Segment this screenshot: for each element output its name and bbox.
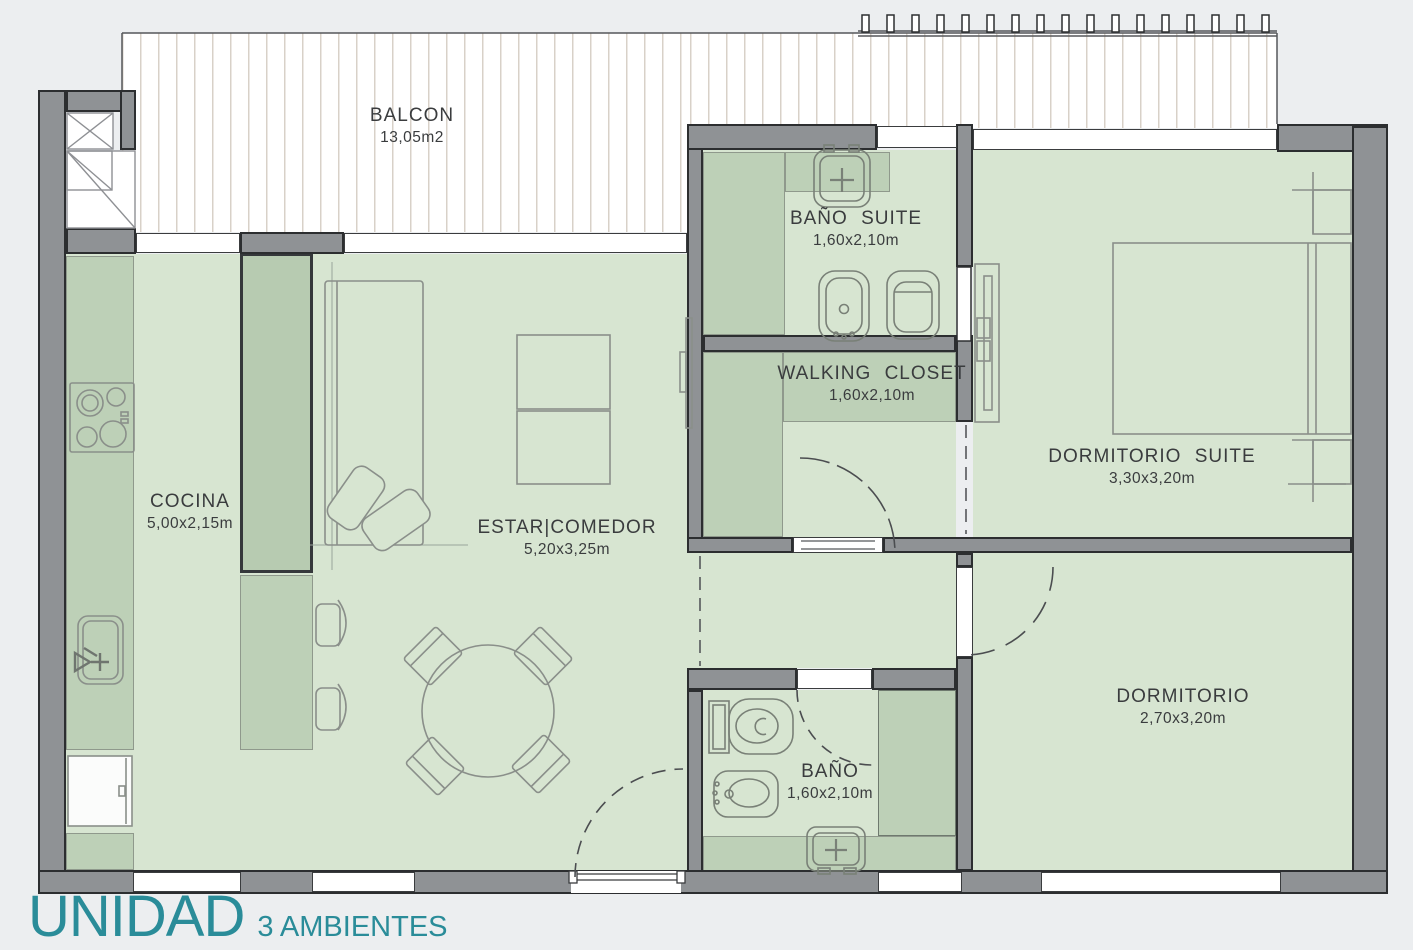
- bath-sink-icon: [807, 827, 865, 874]
- label-bano-suite: BAÑO SUITE 1,60x2,10m: [790, 208, 922, 250]
- floor-plan: BALCON 13,05m2 COCINA 5,00x2,15m ESTAR|C…: [0, 0, 1413, 950]
- room-dims: 13,05m2: [370, 129, 454, 147]
- room-dims: 1,60x2,10m: [790, 232, 922, 250]
- suite-bath-door-leaf: [957, 267, 971, 341]
- room-name: DORMITORIO SUITE: [1048, 446, 1255, 468]
- shaft: [67, 113, 135, 228]
- room-dims: 5,20x3,25m: [477, 541, 656, 559]
- wardrobe-icon: [975, 264, 999, 422]
- bath-door-arc: [797, 690, 872, 765]
- railing-posts: [862, 15, 1269, 32]
- suite-bidet-icon: [819, 271, 869, 341]
- room-name: WALKING CLOSET: [777, 363, 966, 385]
- tv-unit-icon: [517, 318, 692, 484]
- room-dims: 3,30x3,20m: [1048, 470, 1255, 488]
- room-name: ESTAR|COMEDOR: [477, 517, 656, 539]
- closet-door-threshold: [801, 541, 875, 549]
- unit-title: UNIDAD 3 AMBIENTES: [28, 888, 448, 946]
- label-walking-closet: WALKING CLOSET 1,60x2,10m: [777, 363, 966, 405]
- label-estar-comedor: ESTAR|COMEDOR 5,20x3,25m: [477, 517, 656, 559]
- room-dims: 2,70x3,20m: [1116, 710, 1249, 728]
- label-bano: BAÑO 1,60x2,10m: [787, 761, 873, 803]
- room-name: COCINA: [147, 491, 233, 513]
- bed-icon: [1113, 243, 1351, 434]
- sofa-icon: [310, 262, 468, 570]
- room-dims: 5,00x2,15m: [147, 515, 233, 533]
- room-name: BAÑO SUITE: [790, 208, 922, 230]
- suite-sink-icon: [814, 145, 870, 207]
- room-name: DORMITORIO: [1116, 686, 1249, 708]
- label-dormitorio-suite: DORMITORIO SUITE 3,30x3,20m: [1048, 446, 1255, 488]
- unit-title-sub: 3 AMBIENTES: [257, 911, 447, 944]
- suite-toilet-icon: [887, 271, 939, 339]
- unit-title-main: UNIDAD: [28, 888, 244, 946]
- dining-table-icon: [403, 626, 572, 795]
- bar-stool-icon: [316, 600, 346, 730]
- room-name: BAÑO: [787, 761, 873, 783]
- bath-toilet-icon: [709, 699, 793, 754]
- room-dims: 1,60x2,10m: [787, 785, 873, 803]
- open-passage-dashes: [700, 425, 966, 666]
- bedroom-door-arc: [965, 567, 1053, 655]
- label-dormitorio: DORMITORIO 2,70x3,20m: [1116, 686, 1249, 728]
- entry-door-icon: [569, 871, 685, 883]
- cooktop-icon: [70, 383, 134, 452]
- label-cocina: COCINA 5,00x2,15m: [147, 491, 233, 533]
- nightstand-icon: [1288, 172, 1352, 502]
- entry-door-arc: [575, 769, 683, 877]
- room-name: BALCON: [370, 105, 454, 127]
- kitchen-sink-icon: [75, 616, 123, 684]
- room-dims: 1,60x2,10m: [777, 387, 966, 405]
- fridge-icon: [68, 756, 132, 826]
- label-balcon: BALCON 13,05m2: [370, 105, 454, 147]
- balcony-railing: [122, 31, 1277, 124]
- closet-door-arc: [800, 458, 895, 553]
- bath-bidet-icon: [713, 771, 778, 817]
